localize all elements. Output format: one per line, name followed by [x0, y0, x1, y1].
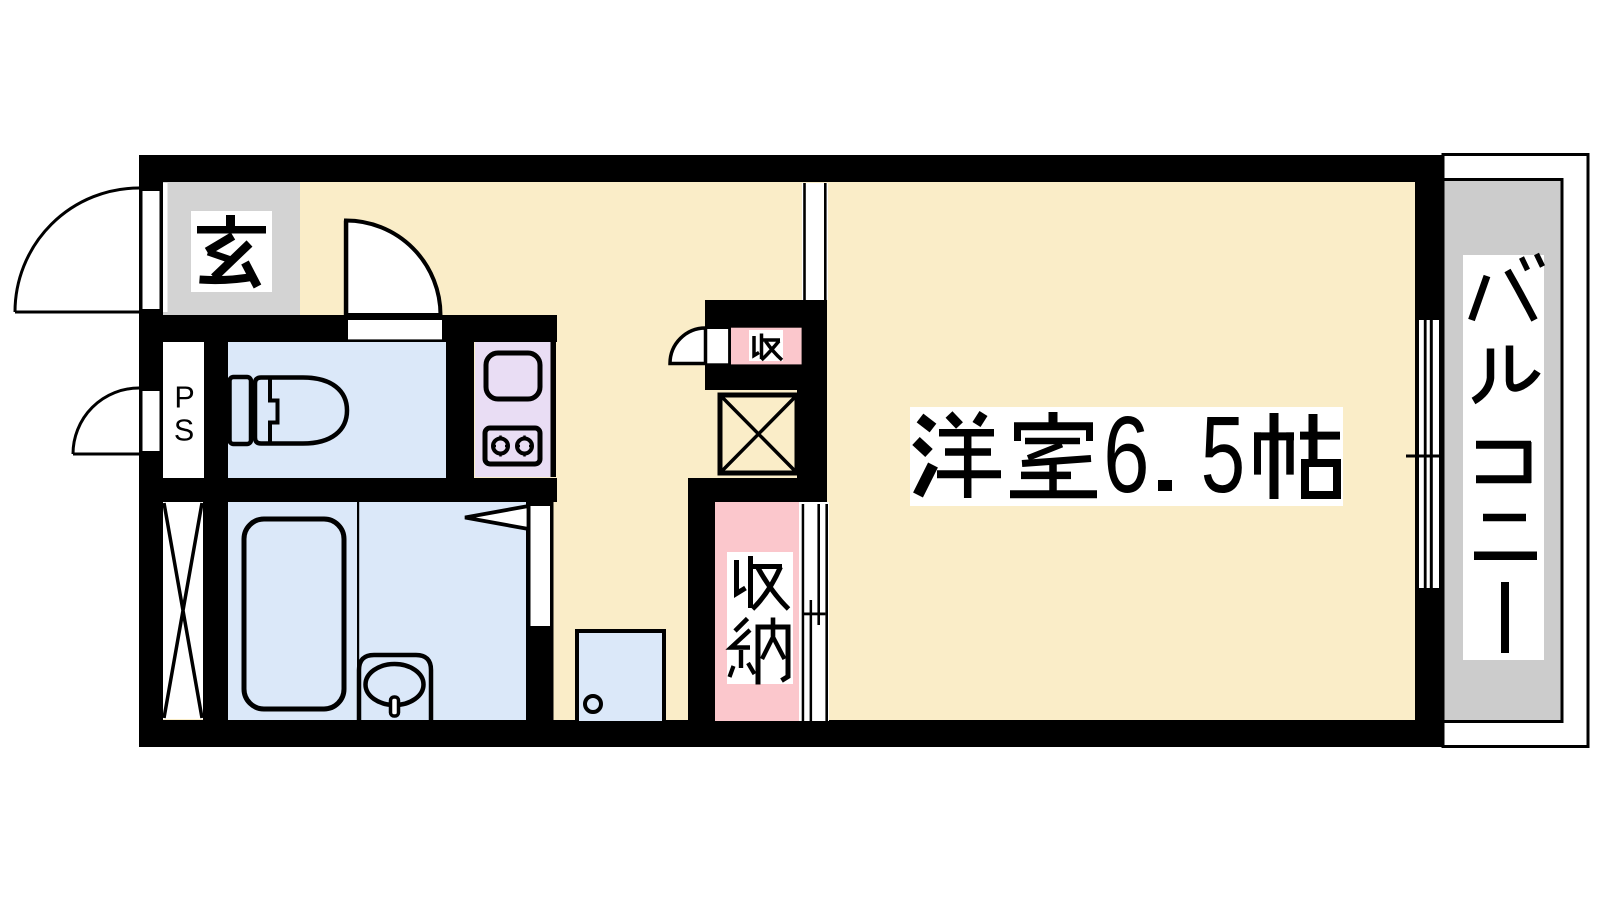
svg-text:5: 5	[1201, 394, 1246, 516]
svg-text:P: P	[174, 381, 194, 415]
svg-text:S: S	[174, 414, 194, 448]
svg-text:6: 6	[1103, 395, 1149, 515]
